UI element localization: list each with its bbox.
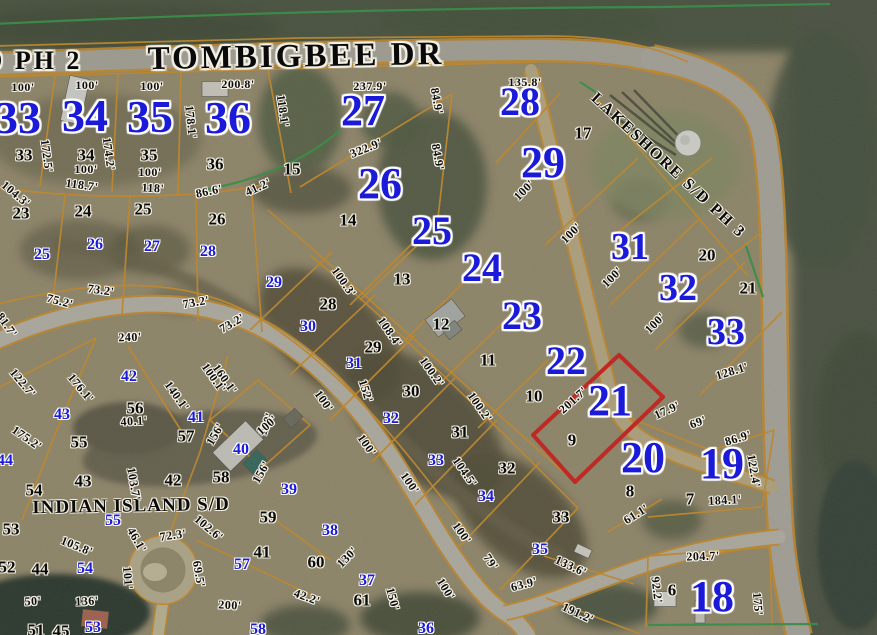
parcel-number: 32 <box>499 460 516 477</box>
parcel-number: 33 <box>553 509 570 526</box>
dimension-label: 240' <box>118 331 142 344</box>
street-label-tombigbee-dr: TOMBIGBEE DR <box>147 38 444 76</box>
parcel-number: 15 <box>284 161 301 178</box>
dimension-label: 75.2' <box>45 292 74 311</box>
lot-number-small: 38 <box>322 523 338 539</box>
parcel-number: 59 <box>260 509 277 526</box>
dimension-label: 140.1' <box>163 379 192 413</box>
dimension-label: 100' <box>11 81 34 93</box>
dimension-label: 175' <box>751 592 765 616</box>
lot-number-small: 43 <box>54 407 70 423</box>
dimension-label: 102.6' <box>192 513 225 544</box>
lot-number-large: 24 <box>462 248 502 288</box>
lot-number-small: 25 <box>34 247 50 263</box>
lot-number-large: 25 <box>412 211 452 251</box>
lot-number-large: 34 <box>62 93 108 139</box>
parcel-number: 24 <box>75 203 92 220</box>
lot-number-small: 26 <box>87 237 103 253</box>
dimension-label: 41.2' <box>243 176 272 198</box>
lot-number-small: 28 <box>200 244 216 260</box>
lot-number-small: 30 <box>300 319 316 335</box>
parcel-number: 33 <box>16 147 33 164</box>
lot-number-large: 21 <box>588 379 632 423</box>
lot-number-large: 26 <box>358 162 402 206</box>
lot-number-small: 39 <box>281 482 297 498</box>
parcel-number: 42 <box>165 472 182 489</box>
parcel-number: 52 <box>0 559 16 576</box>
dimension-label: 176.1' <box>66 371 97 404</box>
dimension-label: 100' <box>450 520 473 546</box>
parcel-number: 10 <box>526 388 543 405</box>
subdivision-label-lakeshore: LAKESHORE S/D PH 3 <box>588 90 748 241</box>
dimension-label: 100' <box>435 576 458 602</box>
lot-number-small: 27 <box>144 239 160 255</box>
dimension-label: 178.1' <box>183 105 198 139</box>
parcel-number: 55 <box>71 434 88 451</box>
parcel-number: 12 <box>433 316 450 333</box>
parcel-number: 25 <box>135 201 152 218</box>
dimension-label: 322.9' <box>348 136 383 160</box>
dimension-label: 118.7' <box>65 177 99 193</box>
parcel-number: 35 <box>141 147 158 164</box>
lot-number-small: 44 <box>0 453 13 469</box>
parcel-number: 58 <box>213 469 230 486</box>
lot-number-large: 33 <box>707 313 745 351</box>
dimension-label: 73.2' <box>182 294 211 310</box>
lot-number-small: 29 <box>266 275 282 291</box>
parcel-number: 20 <box>699 247 716 264</box>
parcel-number: 21 <box>740 280 757 297</box>
parcel-number: 17 <box>575 125 592 142</box>
lot-number-small: 53 <box>85 620 101 635</box>
dimension-label: 86.9' <box>723 428 752 447</box>
parcel-number: 30 <box>403 383 420 400</box>
parcel-number: 57 <box>178 428 195 445</box>
lot-number-large: 22 <box>546 341 586 381</box>
dimension-label: 100' <box>398 470 421 496</box>
parcel-number: 60 <box>308 554 325 571</box>
dimension-label: 100' <box>75 79 98 91</box>
dimension-label: 50' <box>24 595 41 608</box>
dimension-label: 84.9' <box>430 143 446 172</box>
dimension-label: 17.9' <box>652 399 681 421</box>
dimension-label: 122.7' <box>8 366 39 399</box>
parcel-number: 51 <box>28 622 45 635</box>
dimension-label: 46.1' <box>125 525 149 554</box>
parcel-number: 41 <box>254 544 271 561</box>
parcel-number: 54 <box>26 482 43 499</box>
dimension-label: 92.2' <box>649 576 664 604</box>
dimension-label: 73.2' <box>217 311 246 335</box>
lot-number-large: 33 <box>0 95 41 141</box>
dimension-label: 100' <box>138 166 161 178</box>
lot-number-small: 34 <box>478 489 494 505</box>
dimension-label: 101' <box>121 566 135 590</box>
parcel-number: 26 <box>209 211 226 228</box>
parcel-number: 36 <box>207 156 224 173</box>
dimension-label: 63.9' <box>509 575 538 594</box>
lot-number-small: 36 <box>418 621 434 635</box>
dimension-label: 100.2' <box>466 390 495 424</box>
parcel-number: 44 <box>32 561 49 578</box>
street-label-phase-2: D PH 2 <box>0 48 82 74</box>
lot-number-small: 35 <box>532 542 548 558</box>
parcel-number: 31 <box>452 424 469 441</box>
dimension-label: 100.2' <box>418 355 447 389</box>
parcel-number: 28 <box>320 296 337 313</box>
dimension-label: 133.6' <box>553 554 588 579</box>
dimension-label: 100' <box>312 388 335 414</box>
dimension-label: 69.5' <box>191 560 207 589</box>
parcel-number: 11 <box>480 352 496 369</box>
parcel-number: 45 <box>53 623 70 635</box>
lot-number-small: 40 <box>233 442 249 458</box>
dimension-label: 175.2' <box>10 424 44 453</box>
dimension-label: 184.1' <box>708 493 742 507</box>
dimension-label: 79' <box>481 552 500 573</box>
map-labels-layer: TOMBIGBEE DRD PH 2LAKESHORE S/D PH 3INDI… <box>0 0 877 635</box>
dimension-label: 237.9' <box>353 80 386 92</box>
lot-number-small: 41 <box>188 410 204 426</box>
lot-number-small: 32 <box>383 411 399 427</box>
dimension-label: 100' <box>643 311 668 336</box>
dimension-label: 100' <box>559 221 584 246</box>
dimension-label: 191.2' <box>560 601 595 626</box>
dimension-label: 130' <box>335 545 360 570</box>
dimension-label: 200' <box>218 598 242 611</box>
parcel-number: 43 <box>75 473 92 490</box>
dimension-label: 100' <box>355 432 378 458</box>
dimension-label: 104.5' <box>451 455 480 489</box>
dimension-label: 122.4' <box>745 454 763 489</box>
dimension-label: 118' <box>141 181 164 194</box>
dimension-label: 135.8' <box>508 76 541 88</box>
lot-number-large: 32 <box>659 269 697 307</box>
dimension-label: 42.2' <box>292 587 321 607</box>
parcel-number: 13 <box>394 271 411 288</box>
lot-number-large: 27 <box>341 89 385 133</box>
dimension-label: 201.7' <box>557 384 590 415</box>
dimension-label: 72.3' <box>159 527 187 543</box>
parcel-number: 29 <box>365 339 382 356</box>
aerial-plat-map: TOMBIGBEE DRD PH 2LAKESHORE S/D PH 3INDI… <box>0 0 877 635</box>
parcel-number: 53 <box>3 521 20 538</box>
lot-number-large: 31 <box>611 228 649 266</box>
parcel-number: 34 <box>78 147 95 164</box>
dimension-label: 156' <box>250 459 272 485</box>
parcel-number: 9 <box>568 432 577 449</box>
lot-number-large: 20 <box>621 436 665 480</box>
dimension-label: 172.5' <box>39 139 56 174</box>
parcel-number: 14 <box>340 212 357 229</box>
lot-number-small: 54 <box>77 561 93 577</box>
dimension-label: 128.1' <box>714 360 749 381</box>
dimension-label: 156' <box>204 421 226 447</box>
dimension-label: 40.1' <box>120 414 147 427</box>
dimension-label: 81.7' <box>0 311 20 340</box>
lot-number-small: 37 <box>359 573 375 589</box>
parcel-number: 6 <box>668 582 677 599</box>
dimension-label: 69' <box>688 413 708 430</box>
dimension-label: 61.1' <box>621 502 650 526</box>
dimension-label: 174.2' <box>101 137 118 172</box>
dimension-label: 100' <box>140 80 163 92</box>
lot-number-small: 33 <box>428 453 444 469</box>
dimension-label: 100' <box>512 178 537 203</box>
dimension-label: 200.8' <box>221 78 254 90</box>
lot-number-small: 58 <box>250 622 266 635</box>
lot-number-large: 35 <box>127 94 173 140</box>
dimension-label: 204.7' <box>686 549 720 562</box>
parcel-number: 61 <box>354 592 371 609</box>
lot-number-small: 55 <box>105 513 121 529</box>
lot-number-large: 19 <box>700 442 744 486</box>
dimension-label: 136' <box>75 594 99 607</box>
dimension-label: 118.1' <box>275 94 291 128</box>
dimension-label: 152' <box>357 378 376 404</box>
dimension-label: 86.6' <box>195 182 224 199</box>
parcel-number: 7 <box>686 491 695 508</box>
dimension-label: 100' <box>600 265 625 290</box>
parcel-number: 8 <box>626 483 635 500</box>
dimension-label: 100' <box>74 163 97 175</box>
dimension-label: 84.9' <box>429 87 445 116</box>
lot-number-large: 23 <box>502 296 542 336</box>
dimension-label: 105.8' <box>59 534 94 558</box>
dimension-label: 73.2' <box>87 282 115 298</box>
dimension-label: 150' <box>384 586 402 612</box>
lot-number-large: 36 <box>205 95 251 141</box>
lot-number-large: 18 <box>690 575 734 619</box>
lot-number-small: 42 <box>121 369 137 385</box>
lot-number-small: 31 <box>346 356 362 372</box>
lot-number-small: 57 <box>234 557 250 573</box>
